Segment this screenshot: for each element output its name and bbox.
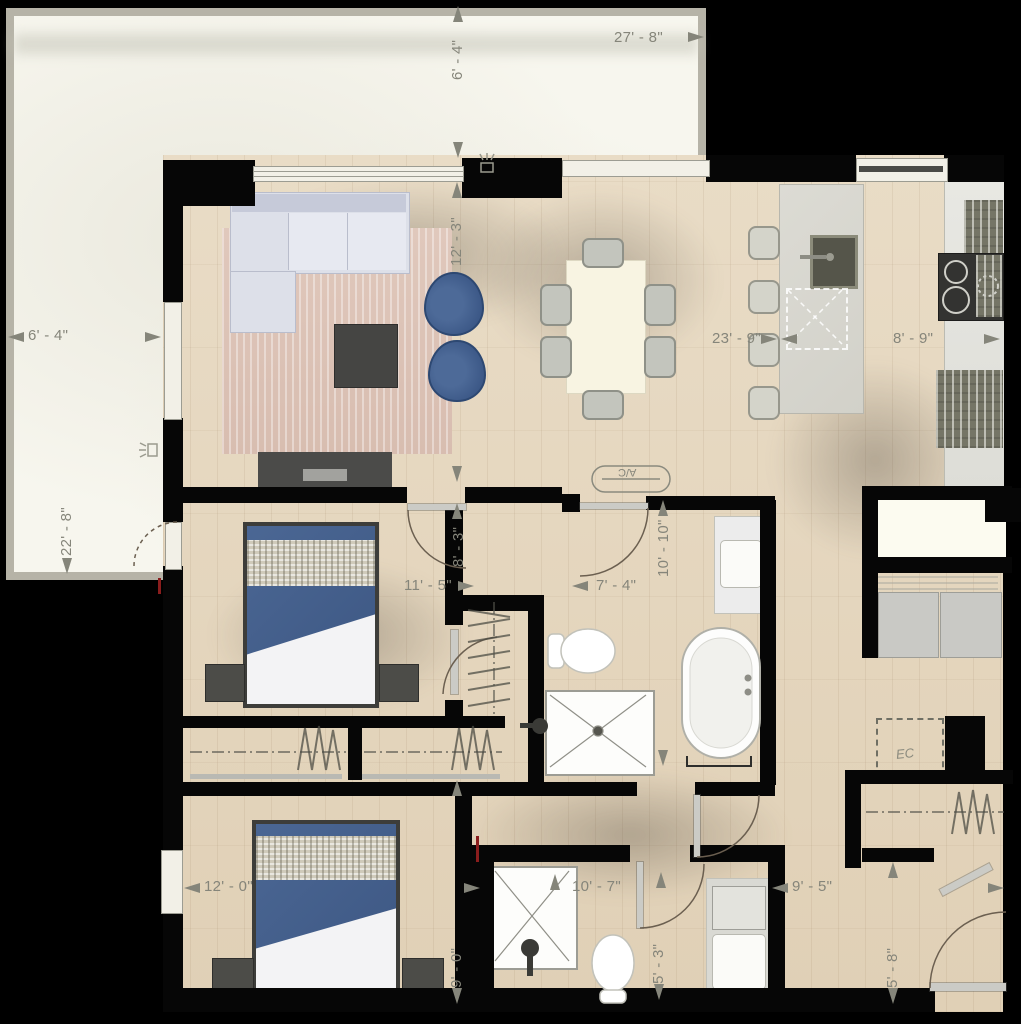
light-icon: [139, 153, 494, 457]
wardrobe-shelf-lines: [878, 577, 998, 589]
dim-arrow: [688, 32, 704, 42]
dim-bedroom1-door-offset: 8' - 3": [450, 521, 467, 567]
toilet: [592, 935, 634, 1003]
dim-arrow: [772, 883, 788, 893]
dim-arrow: [656, 872, 666, 888]
dim-arrow: [458, 581, 474, 591]
toilet: [548, 629, 615, 673]
dim-arrow: [572, 581, 588, 591]
dim-great-room-width: 23' - 9": [712, 330, 761, 347]
dim-arrow: [453, 6, 463, 22]
bathtub: [682, 628, 760, 758]
dim-terrace-height: 22' - 8": [58, 492, 75, 556]
dim-arrow: [761, 334, 777, 344]
symbol-overlay: [0, 0, 1021, 1024]
dim-bedroom2-width: 12' - 0": [204, 878, 253, 895]
dim-bath2-width: 10' - 7": [572, 878, 621, 895]
dim-arrow: [62, 558, 72, 574]
dim-arrow: [984, 334, 1000, 344]
dim-arrow: [988, 883, 1004, 893]
dim-arrow: [658, 500, 668, 516]
dim-bedroom2-depth: 9' - 0": [448, 936, 465, 988]
floor-plan: EC: [0, 0, 1021, 1024]
dim-arrow: [452, 503, 462, 519]
dim-terrace-top-depth: 6' - 4": [449, 26, 466, 80]
dim-arrow: [145, 332, 161, 342]
dim-arrow: [654, 984, 664, 1000]
dim-arrow: [888, 862, 898, 878]
dim-arrow: [184, 883, 200, 893]
door-arc: [134, 508, 1006, 988]
dim-living-depth: 12' - 3": [448, 202, 465, 266]
dim-arrow: [658, 750, 668, 766]
dim-arrow: [888, 988, 898, 1004]
dim-arrow: [452, 988, 462, 1004]
dim-arrow: [452, 182, 462, 198]
shower-handle: [520, 718, 548, 976]
dim-kitchen-width: 8' - 9": [893, 330, 933, 347]
dim-arrow: [452, 780, 462, 796]
dim-arrow: [452, 466, 462, 482]
dim-arrow: [453, 142, 463, 158]
dim-entry-depth: 5' - 8": [884, 938, 901, 988]
cooktop-burners: [943, 261, 998, 313]
ac-unit-label: A/C: [618, 466, 636, 478]
dim-terrace-left-depth: 6' - 4": [28, 327, 68, 344]
hanger-symbols: [298, 610, 994, 834]
dim-hall-width: 7' - 4": [596, 577, 636, 594]
shower-glass: [495, 695, 646, 961]
dim-arrow: [8, 332, 24, 342]
dim-arrow: [464, 883, 480, 893]
dim-wc-depth: 5' - 3": [650, 938, 667, 984]
dim-arrow: [550, 874, 560, 890]
dim-hall2-width: 9' - 5": [792, 878, 832, 895]
dim-terrace-width: 27' - 8": [614, 29, 663, 46]
dim-bath1-depth: 10' - 10": [655, 519, 672, 577]
dim-bedroom1-width: 11' - 5": [404, 577, 452, 594]
dim-arrow: [781, 334, 797, 344]
